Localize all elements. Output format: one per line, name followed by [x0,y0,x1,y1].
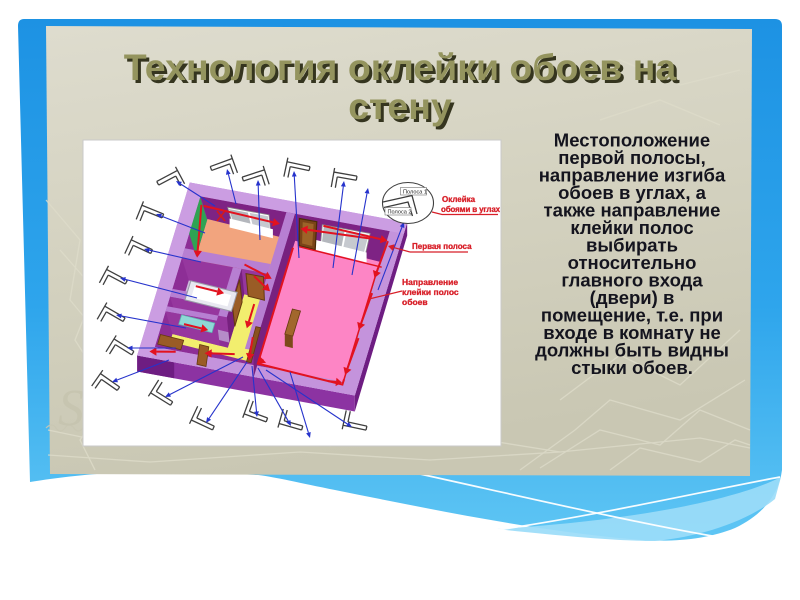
svg-text:обоев: обоев [402,297,428,307]
svg-text:Технология оклейки обоев на: Технология оклейки обоев на [124,46,678,88]
svg-text:обоями в углах: обоями в углах [441,205,501,214]
svg-text:Направление: Направление [402,277,458,287]
svg-text:Полоса 2: Полоса 2 [388,210,412,216]
svg-text:стену: стену [348,85,452,127]
svg-text:клейки полос: клейки полос [402,287,459,297]
svg-text:стыки обоев.: стыки обоев. [571,357,693,378]
svg-text:Оклейка: Оклейка [442,195,476,204]
svg-text:Полоса 1: Полоса 1 [403,190,427,196]
svg-text:Первая полоса: Первая полоса [412,242,472,251]
svg-text:S: S [58,380,84,437]
